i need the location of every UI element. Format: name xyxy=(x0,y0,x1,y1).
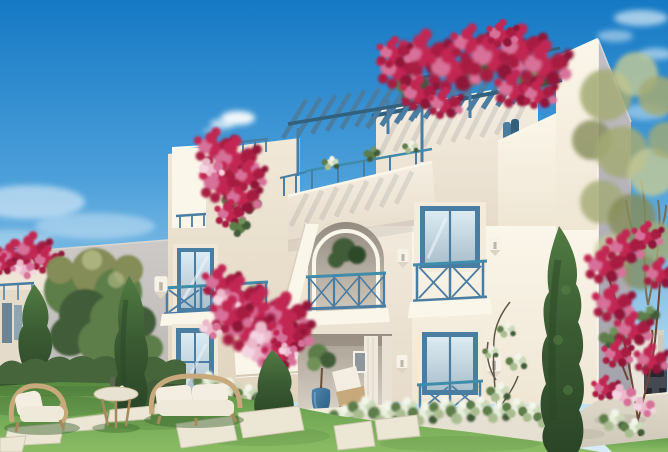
stone xyxy=(375,415,420,440)
cloud xyxy=(35,213,155,239)
cloud xyxy=(210,119,234,129)
porch xyxy=(298,334,392,417)
stone xyxy=(0,436,26,452)
property-rendering xyxy=(0,0,668,452)
upper-window-right xyxy=(408,202,492,318)
stone xyxy=(334,421,375,450)
cloud xyxy=(597,30,633,42)
cloud xyxy=(614,10,668,26)
